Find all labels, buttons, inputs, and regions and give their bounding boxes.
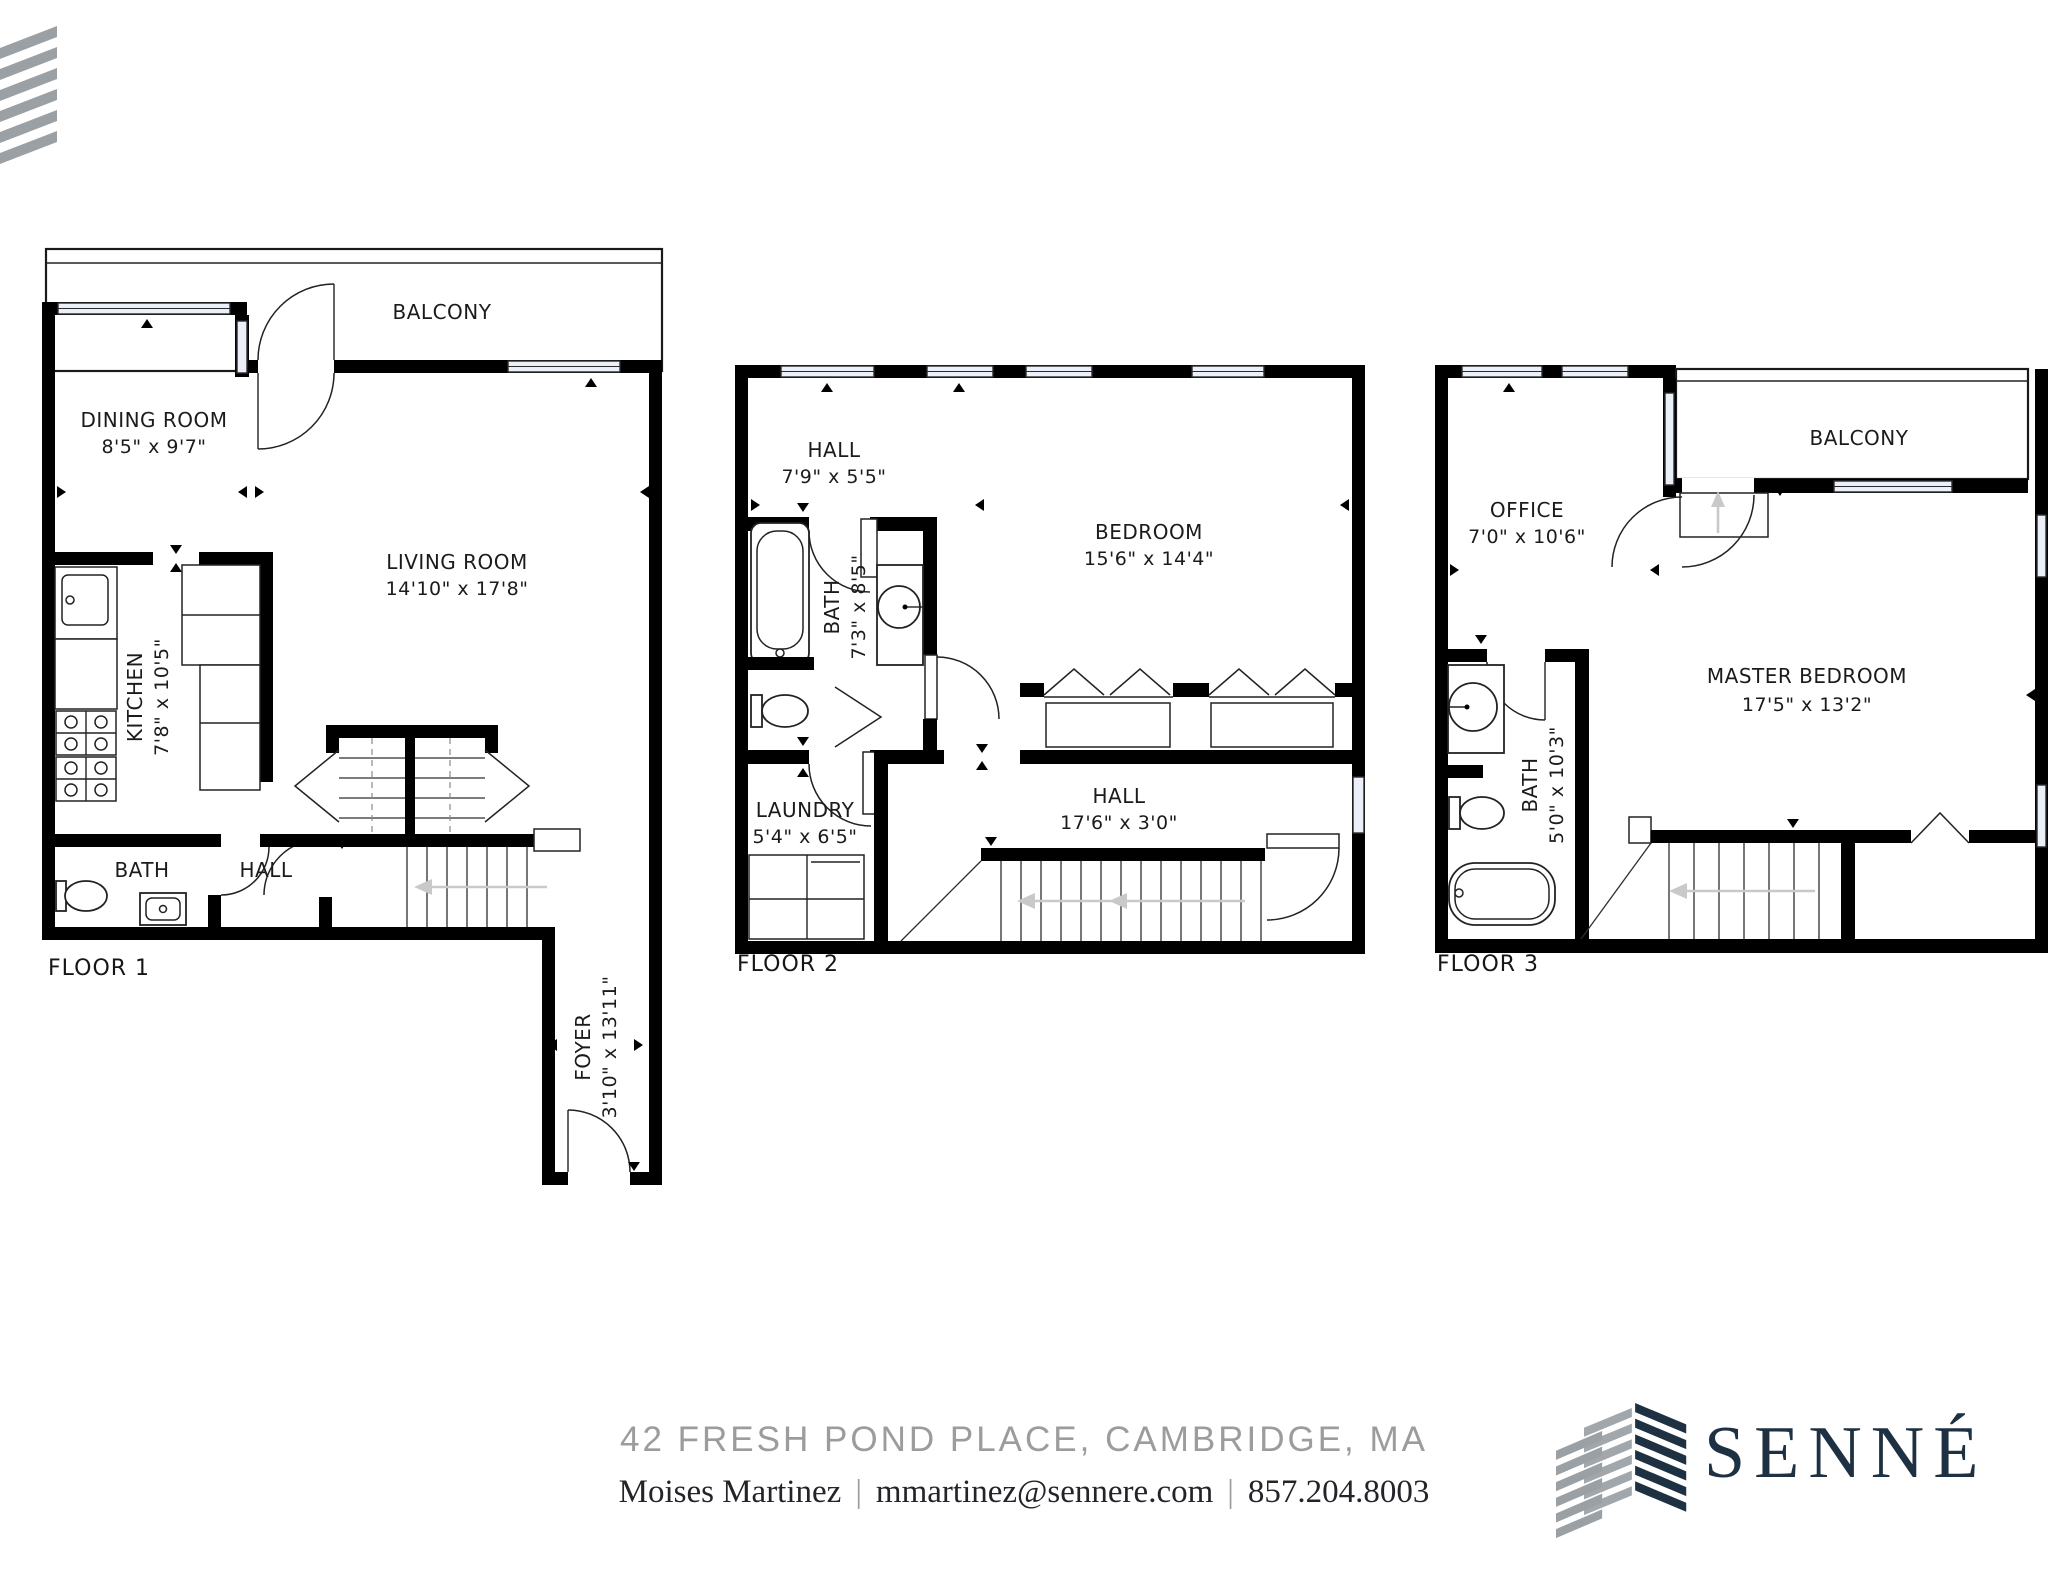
room-label-balcony-f3: BALCONY <box>1810 426 1909 450</box>
room-dims-hall-lower-f2: 17'6" x 3'0" <box>1060 812 1178 834</box>
floor-2-plan: HALL 7'9" x 5'5" BEDROOM 15'6" x 14'4" B… <box>735 365 1365 977</box>
floor-2-label: FLOOR 2 <box>737 952 839 977</box>
brand-wordmark: SENNÉ <box>1704 1416 1987 1490</box>
room-label-bath-f1: BATH <box>114 858 169 882</box>
room-dims-bath-f2: 7'3" x 8'5" <box>848 554 870 659</box>
room-dims-master-bedroom: 17'5" x 13'2" <box>1742 694 1872 716</box>
agent-name: Moises Martinez <box>619 1474 842 1510</box>
room-label-bath-f3: BATH <box>1518 757 1542 812</box>
separator: | <box>1213 1474 1248 1510</box>
room-label-living-room: LIVING ROOM <box>386 550 528 574</box>
agent-phone: 857.204.8003 <box>1248 1474 1430 1510</box>
senne-logo: SENNÉ <box>1556 1402 1987 1540</box>
floor-1-label: FLOOR 1 <box>48 956 150 981</box>
room-dims-bath-f3: 5'0" x 10'3" <box>1546 726 1568 844</box>
room-dims-hall-upper-f2: 7'9" x 5'5" <box>781 466 886 488</box>
room-label-laundry: LAUNDRY <box>756 798 855 822</box>
room-dims-living-room: 14'10" x 17'8" <box>386 578 529 600</box>
floor-3-label: FLOOR 3 <box>1437 952 1539 977</box>
room-label-hall-lower-f2: HALL <box>1092 784 1145 808</box>
room-label-bedroom-f2: BEDROOM <box>1095 520 1203 544</box>
floor-1-plan: BALCONY DINING ROOM 8'5" x 9'7" LIVING R… <box>42 245 682 1195</box>
room-label-foyer: FOYER <box>571 1013 595 1080</box>
senne-building-mark-icon <box>1556 1402 1692 1540</box>
room-label-hall-upper-f2: HALL <box>807 438 860 462</box>
floor3-balcony-outline <box>1676 369 2028 479</box>
room-label-bath-f2: BATH <box>820 579 844 634</box>
room-dims-dining-room: 8'5" x 9'7" <box>101 436 206 458</box>
room-label-master-bedroom: MASTER BEDROOM <box>1707 664 1907 688</box>
room-label-hall-f1: HALL <box>239 858 292 882</box>
diagonal-stripes-mark-icon <box>0 22 60 168</box>
room-dims-foyer: 3'10" x 13'11" <box>599 976 621 1119</box>
room-label-office: OFFICE <box>1490 498 1564 522</box>
room-label-balcony-f1: BALCONY <box>393 300 492 324</box>
agent-email: mmartinez@sennere.com <box>876 1474 1213 1510</box>
room-dims-bedroom-f2: 15'6" x 14'4" <box>1084 548 1214 570</box>
separator: | <box>841 1474 876 1510</box>
room-label-kitchen: KITCHEN <box>123 652 147 742</box>
flyer-page: BALCONY DINING ROOM 8'5" x 9'7" LIVING R… <box>0 0 2048 1583</box>
room-dims-laundry: 5'4" x 6'5" <box>752 826 857 848</box>
floor-3-plan: BALCONY OFFICE 7'0" x 10'6" MASTER BEDRO… <box>1435 365 2048 977</box>
room-label-dining-room: DINING ROOM <box>80 408 227 432</box>
room-dims-office: 7'0" x 10'6" <box>1468 526 1586 548</box>
room-dims-kitchen: 7'8" x 10'5" <box>151 638 173 756</box>
